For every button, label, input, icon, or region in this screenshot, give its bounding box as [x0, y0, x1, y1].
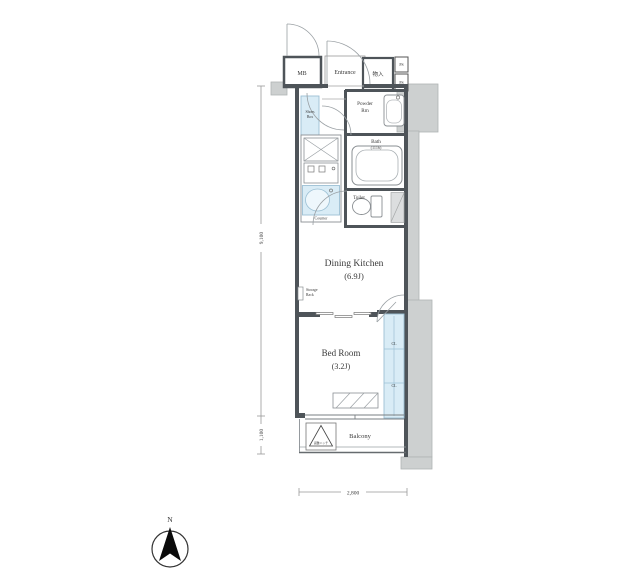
dim-label-balcony: 1,100	[259, 429, 265, 442]
dim-label-main: 9,100	[259, 232, 265, 245]
wall-bedroom-bottom-nib	[299, 413, 305, 418]
toilet-tank	[371, 196, 382, 217]
sliding-door-panel-3	[354, 313, 371, 315]
label-mb: MB	[297, 71, 306, 77]
label-powder-line2: Rm	[361, 108, 369, 114]
label-toilet: Toilet	[353, 196, 365, 201]
label-storage-closet: 物入	[372, 70, 384, 78]
stove-burner-2	[319, 166, 325, 172]
dim-label-width: 2,800	[347, 491, 360, 497]
floorplan-drawing: MB Entrance 物入 PS PS Powder Rm Bath (111…	[0, 0, 640, 569]
label-entrance: Entrance	[334, 70, 356, 76]
sliding-door-panel-1	[316, 313, 333, 315]
label-counter: Counter	[315, 216, 329, 221]
storage-rack-box	[298, 287, 303, 300]
wall-right	[404, 84, 408, 457]
label-bed-room: Bed Room	[322, 348, 361, 358]
label-shoes-line2: Box	[307, 115, 313, 119]
label-closet-upper: CL	[391, 341, 397, 346]
label-rack-line1: Storage	[306, 288, 318, 292]
wall-hall-powder	[344, 90, 347, 136]
bathtub	[352, 146, 402, 185]
wall-powder-top	[345, 89, 407, 92]
label-rack-line2: Rack	[306, 293, 314, 297]
exterior-strip-right-upper	[407, 131, 419, 302]
compass-north-label: N	[167, 515, 173, 524]
sliding-door-panel-2	[335, 316, 352, 318]
label-bed-room-size: (3.2J)	[332, 362, 351, 371]
label-balcony: Balcony	[349, 433, 371, 440]
label-dining-kitchen-size: (6.9J)	[344, 271, 364, 281]
label-closet-lower: CL	[391, 383, 397, 388]
label-ps-upper: PS	[399, 63, 403, 67]
wall-column-divider	[344, 136, 347, 228]
label-dining-kitchen: Dining Kitchen	[325, 259, 384, 269]
wall-closet-top	[377, 310, 404, 314]
floorplan-canvas: MB Entrance 物入 PS PS Powder Rm Bath (111…	[0, 0, 640, 569]
label-shoes-line1: Shoes	[305, 110, 315, 114]
label-ps-lower: PS	[399, 81, 403, 85]
mb-door-arc	[287, 24, 319, 56]
exterior-block-bottomright	[401, 457, 432, 469]
label-powder-line1: Powder	[357, 101, 373, 107]
wall-top-left	[283, 84, 328, 88]
stove-burner-1	[308, 166, 314, 172]
wall-left	[295, 84, 299, 418]
wall-toilet-dk	[344, 225, 407, 228]
wall-powder-bath	[347, 133, 407, 136]
wall-bath-toilet	[347, 188, 407, 191]
exterior-strip-right-lower	[407, 300, 432, 457]
label-bath-size: (1116)	[371, 145, 382, 150]
label-evacuation-hatch: 避難ハッチ	[314, 441, 328, 445]
sliding-doors	[316, 313, 371, 318]
